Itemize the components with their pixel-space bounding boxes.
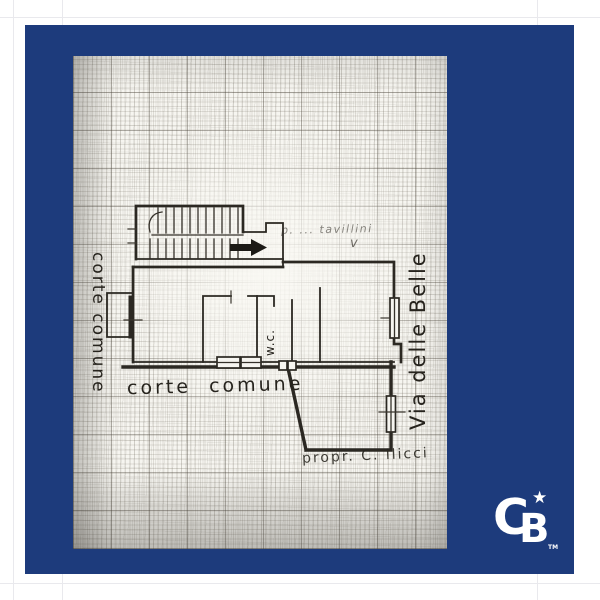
trademark-mark: TM	[548, 545, 558, 551]
margin-grid-line	[0, 583, 600, 584]
label-via-delle-belle: Via delle Belle	[408, 251, 429, 430]
coldwell-banker-logo: C B ★ TM	[496, 496, 554, 556]
label-wc: w.c.	[264, 329, 276, 356]
stair-walkline	[149, 212, 162, 232]
listing-image: corte comune corte comune w.c. Via delle…	[0, 0, 600, 600]
label-handwritten-top: p. ... tavillini	[281, 223, 373, 236]
label-corte-comune-left: corte comune	[89, 252, 106, 394]
label-handwritten-mark: v	[350, 237, 358, 250]
margin-grid-line	[0, 17, 600, 18]
star-icon: ★	[532, 490, 547, 507]
floorplan-drawing	[73, 56, 447, 549]
margin-grid-line	[13, 0, 14, 600]
logo-letter-b: B	[519, 509, 550, 549]
label-corte-comune-bottom: corte comune	[127, 375, 304, 399]
entry-arrow-icon	[230, 239, 267, 256]
